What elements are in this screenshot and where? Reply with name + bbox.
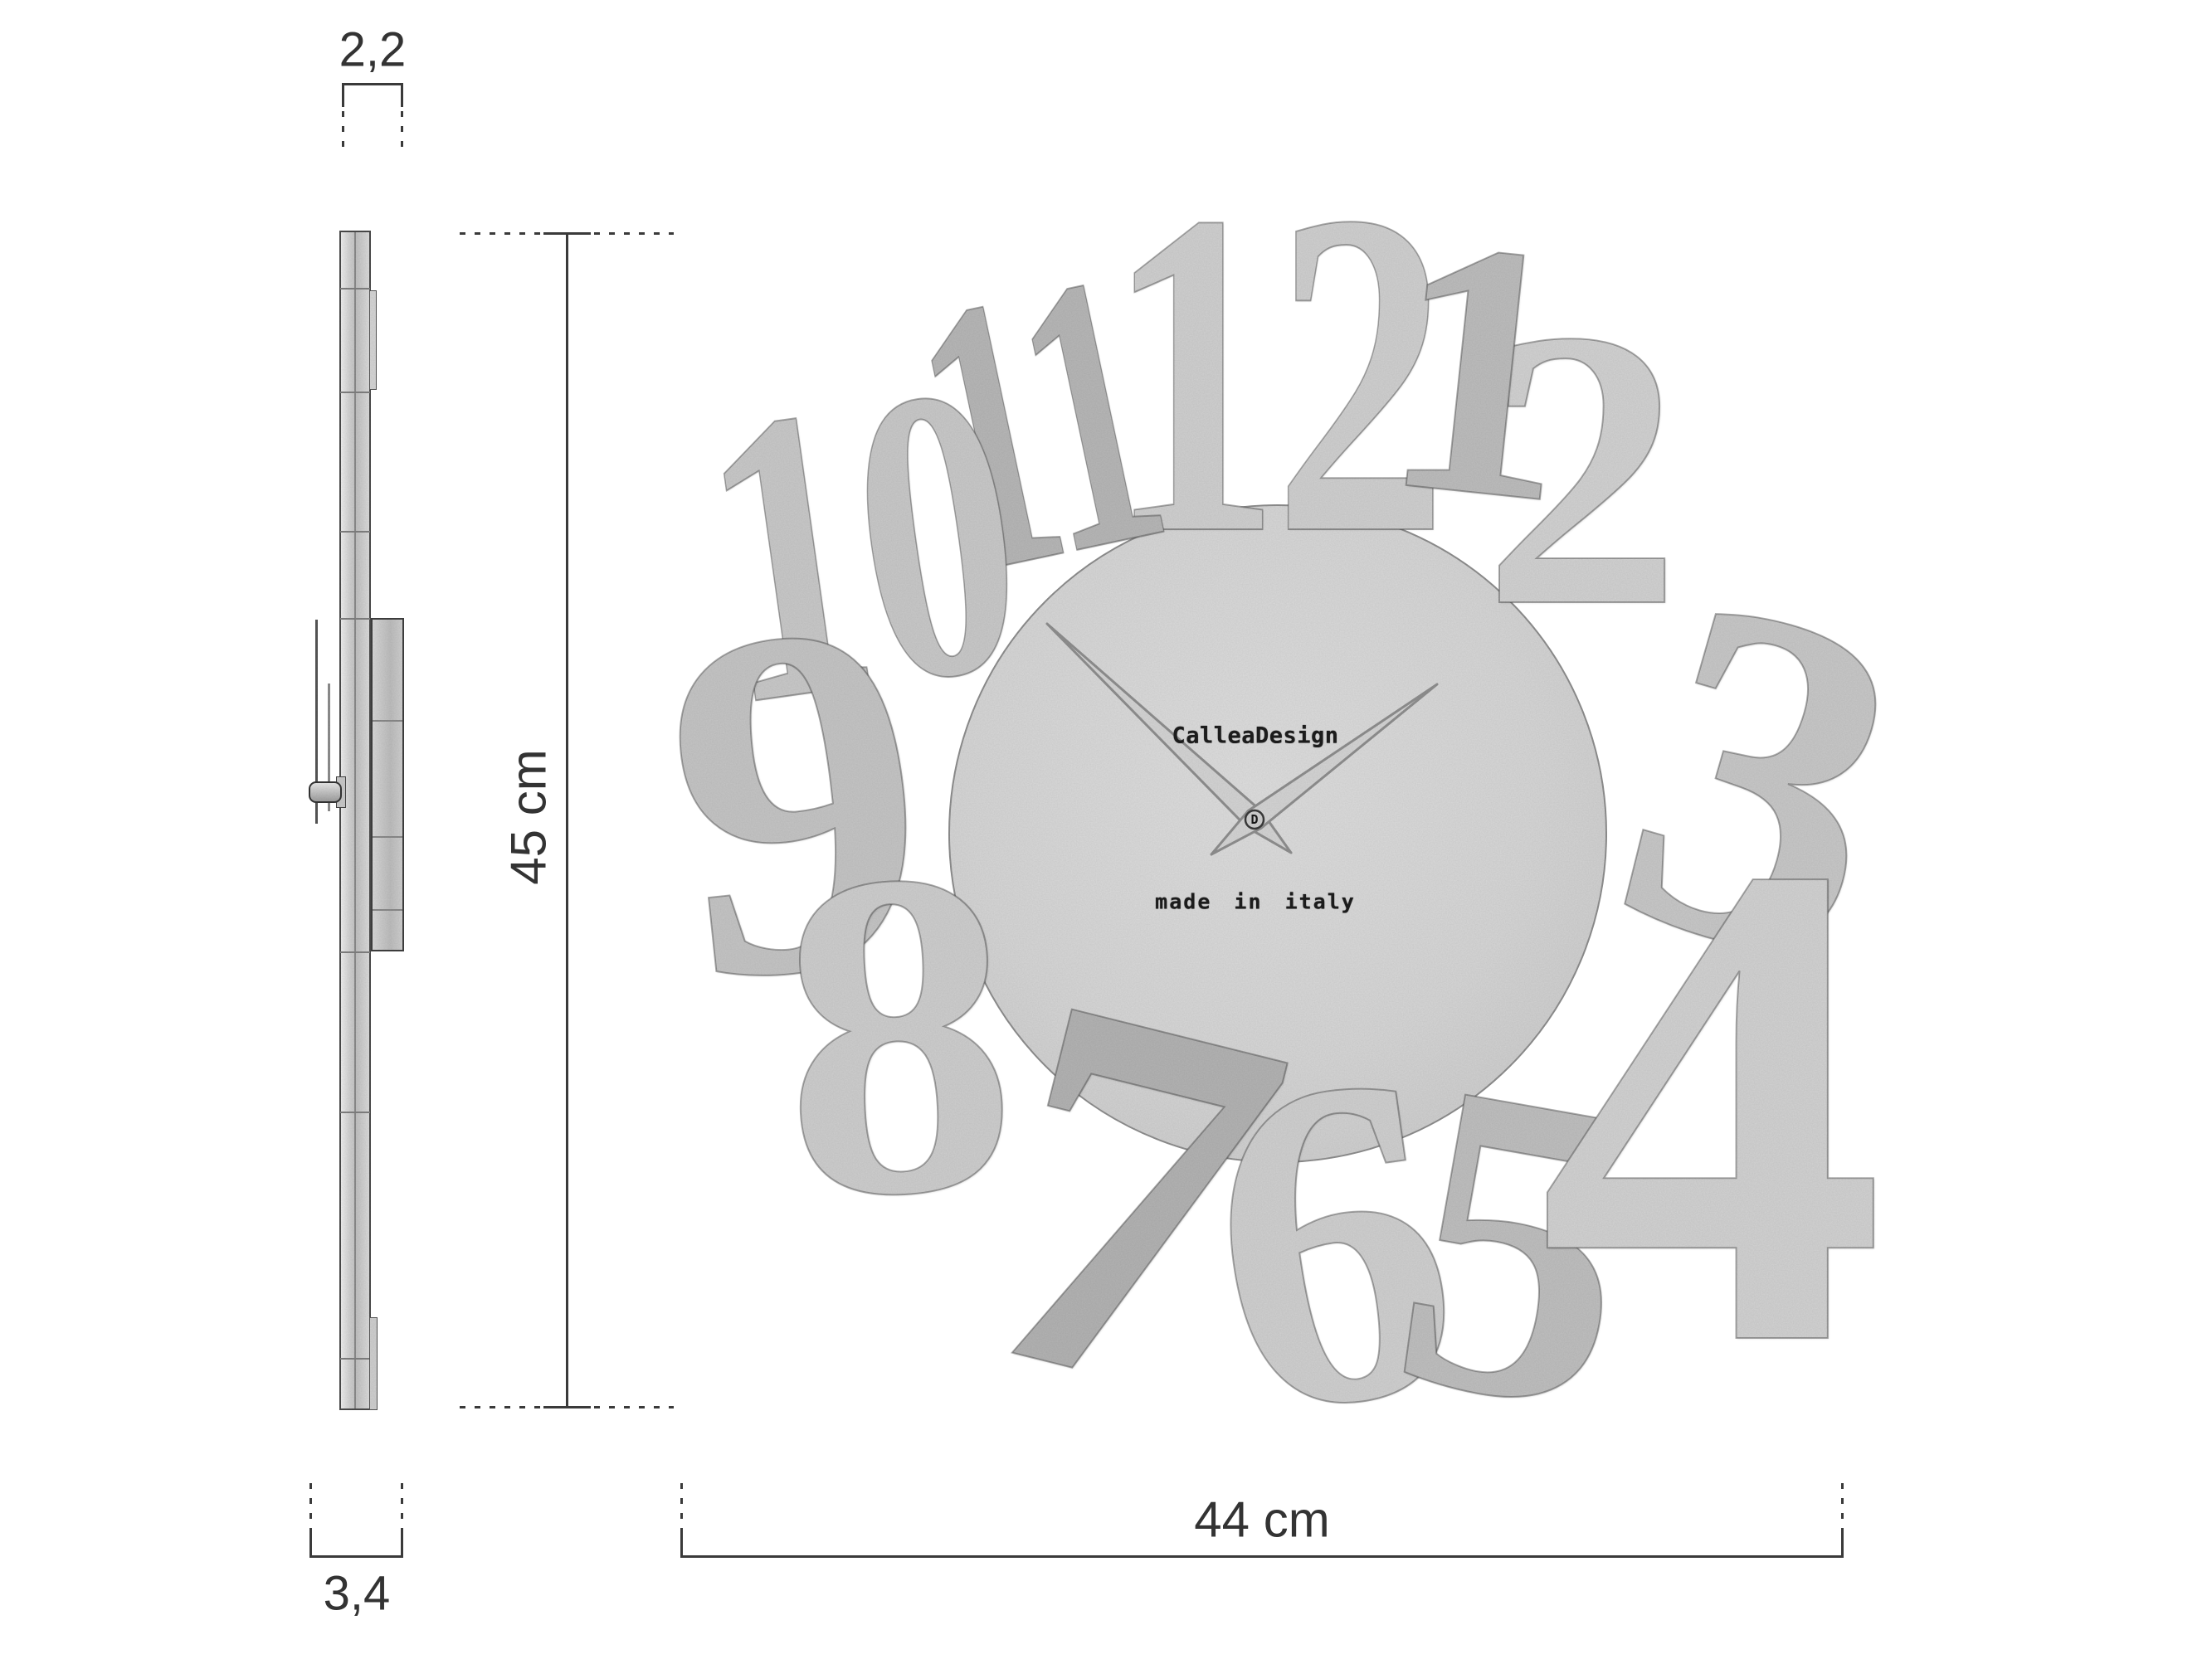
made-in-italy-text: made in italy (1155, 890, 1356, 914)
hour-hand (1211, 684, 1437, 854)
hub-logo: D (1250, 812, 1258, 827)
clock-front-view: 121110987654321 D CalleaDesign made in i… (0, 0, 2212, 1659)
drawing-canvas: 2,2 45 cm 3,4 44 cm 121110987654321 D Ca… (0, 0, 2212, 1659)
brand-logo-text: CalleaDesign (1172, 723, 1338, 749)
clock-hands: D (0, 0, 2212, 1659)
